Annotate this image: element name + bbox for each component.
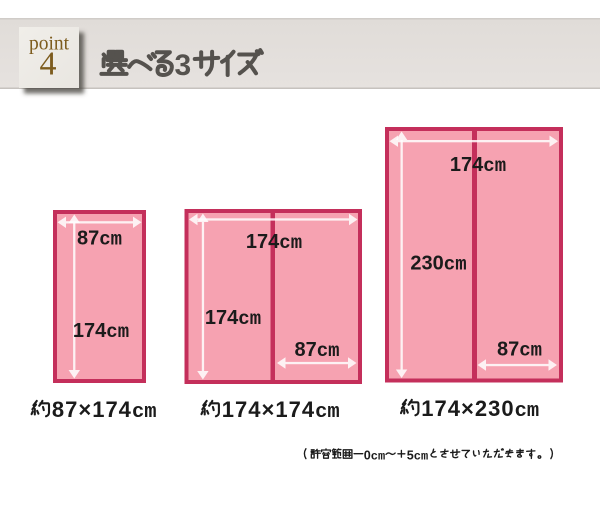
svg-text:cm: cm bbox=[106, 321, 129, 343]
svg-text:174: 174 bbox=[205, 307, 239, 329]
svg-text:cm: cm bbox=[515, 400, 540, 423]
svg-text:87: 87 bbox=[497, 339, 519, 361]
svg-text:cm: cm bbox=[483, 155, 506, 177]
svg-text:cm: cm bbox=[315, 401, 340, 424]
svg-text:cm: cm bbox=[132, 401, 157, 424]
svg-text:cm: cm bbox=[279, 232, 302, 254]
svg-text:0: 0 bbox=[364, 448, 371, 462]
svg-text:cm: cm bbox=[414, 449, 428, 463]
svg-text:174×174: 174×174 bbox=[222, 397, 315, 422]
svg-text:3: 3 bbox=[175, 49, 192, 82]
svg-text:cm: cm bbox=[99, 229, 122, 251]
svg-text:cm: cm bbox=[519, 340, 542, 362]
svg-text:87×174: 87×174 bbox=[52, 397, 132, 422]
svg-text:174: 174 bbox=[450, 154, 484, 176]
svg-text:cm: cm bbox=[371, 449, 385, 463]
svg-text:174×230: 174×230 bbox=[421, 396, 514, 421]
svg-text:87: 87 bbox=[77, 228, 99, 250]
svg-text:174: 174 bbox=[73, 320, 107, 342]
svg-text:cm: cm bbox=[444, 254, 467, 276]
svg-text:87: 87 bbox=[295, 339, 317, 361]
svg-text:5: 5 bbox=[407, 448, 414, 462]
svg-text:230: 230 bbox=[410, 253, 443, 275]
svg-text:4: 4 bbox=[40, 46, 57, 83]
svg-text:cm: cm bbox=[317, 340, 340, 362]
svg-text:174: 174 bbox=[246, 231, 280, 253]
svg-text:cm: cm bbox=[238, 308, 261, 330]
